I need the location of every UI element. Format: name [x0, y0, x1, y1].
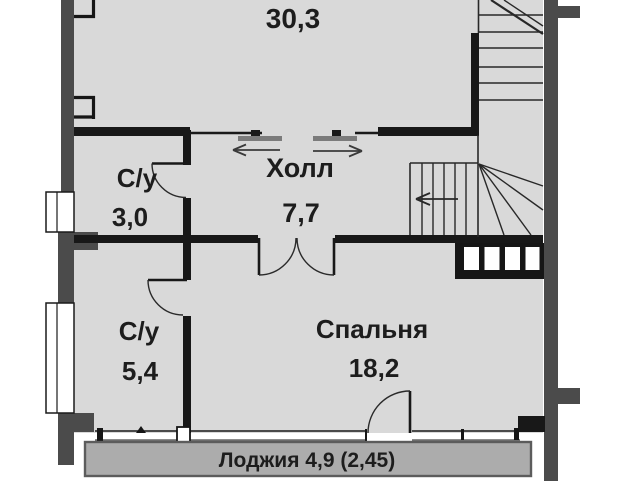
window-left-lower [46, 303, 74, 413]
label-loggia: Лоджия 4,9 (2,45) [219, 449, 395, 472]
label-bedroom-name: Спальня [316, 314, 428, 344]
window-left-upper [46, 192, 74, 232]
outer-wall-right-stub-top [544, 6, 580, 18]
label-bedroom-area: 18,2 [349, 353, 400, 383]
sliding-door-stop-right [332, 130, 341, 136]
label-hall-name: Холл [266, 153, 334, 183]
wall-stair-west [471, 33, 479, 136]
sliding-door-stop-left [251, 130, 260, 136]
wall-bath-top-north [74, 127, 190, 136]
vent-cell-2 [485, 247, 500, 270]
outer-wall-left-top [61, 0, 74, 192]
wall-hall-south-right [335, 235, 543, 243]
outer-wall-left-bottom-arm [58, 413, 94, 432]
label-bath-bottom-name: С/у [119, 316, 160, 346]
vent-cell-1 [464, 247, 479, 270]
vent-cell-3 [505, 247, 520, 270]
wall-bath-bottom-east [183, 316, 191, 433]
wall-hall-south-left [74, 235, 258, 243]
outer-wall-right-stub-middle [544, 388, 580, 404]
glazing-post-5 [514, 428, 519, 440]
glazing-post-3 [177, 427, 190, 442]
label-bath-top-name: С/у [117, 163, 158, 193]
label-bath-top-area: 3,0 [112, 202, 148, 232]
label-top-room-area: 30,3 [266, 3, 321, 34]
outer-wall-right [544, 0, 558, 481]
label-hall-area: 7,7 [282, 198, 320, 228]
label-bath-bottom-area: 5,4 [122, 356, 159, 386]
glazing-post-1 [97, 428, 103, 441]
floor-plan-canvas: 30,3 С/у 3,0 Холл 7,7 С/у 5,4 Спальня 18… [0, 0, 626, 481]
wall-hall-north-right [378, 127, 479, 136]
sliding-door-panel-right [313, 136, 357, 141]
wall-stub-bottom-right [518, 416, 545, 432]
vent-shaft [455, 243, 544, 279]
floor-plan: 30,3 С/у 3,0 Холл 7,7 С/у 5,4 Спальня 18… [0, 0, 626, 481]
windows [46, 192, 74, 413]
glazing-post-4 [461, 429, 464, 440]
vent-cell-4 [526, 247, 540, 270]
wall-bath-top-east-upper [183, 130, 191, 165]
sliding-door-panel-left [238, 136, 282, 141]
